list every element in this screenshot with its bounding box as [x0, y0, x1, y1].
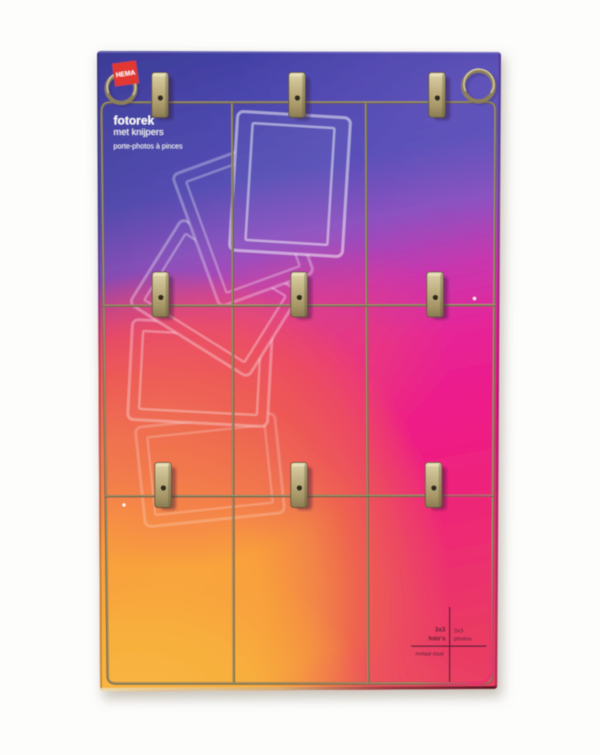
- svg-text:met knijpers: met knijpers: [114, 127, 164, 137]
- svg-text:foto's: foto's: [428, 636, 446, 643]
- svg-text:fotorek: fotorek: [114, 114, 155, 128]
- svg-text:porte-photos à pinces: porte-photos à pinces: [114, 142, 184, 151]
- svg-text:3x3: 3x3: [435, 627, 446, 634]
- svg-text:photos: photos: [454, 637, 472, 643]
- svg-text:3x3: 3x3: [454, 629, 463, 635]
- svg-text:metaal staal: metaal staal: [416, 652, 444, 658]
